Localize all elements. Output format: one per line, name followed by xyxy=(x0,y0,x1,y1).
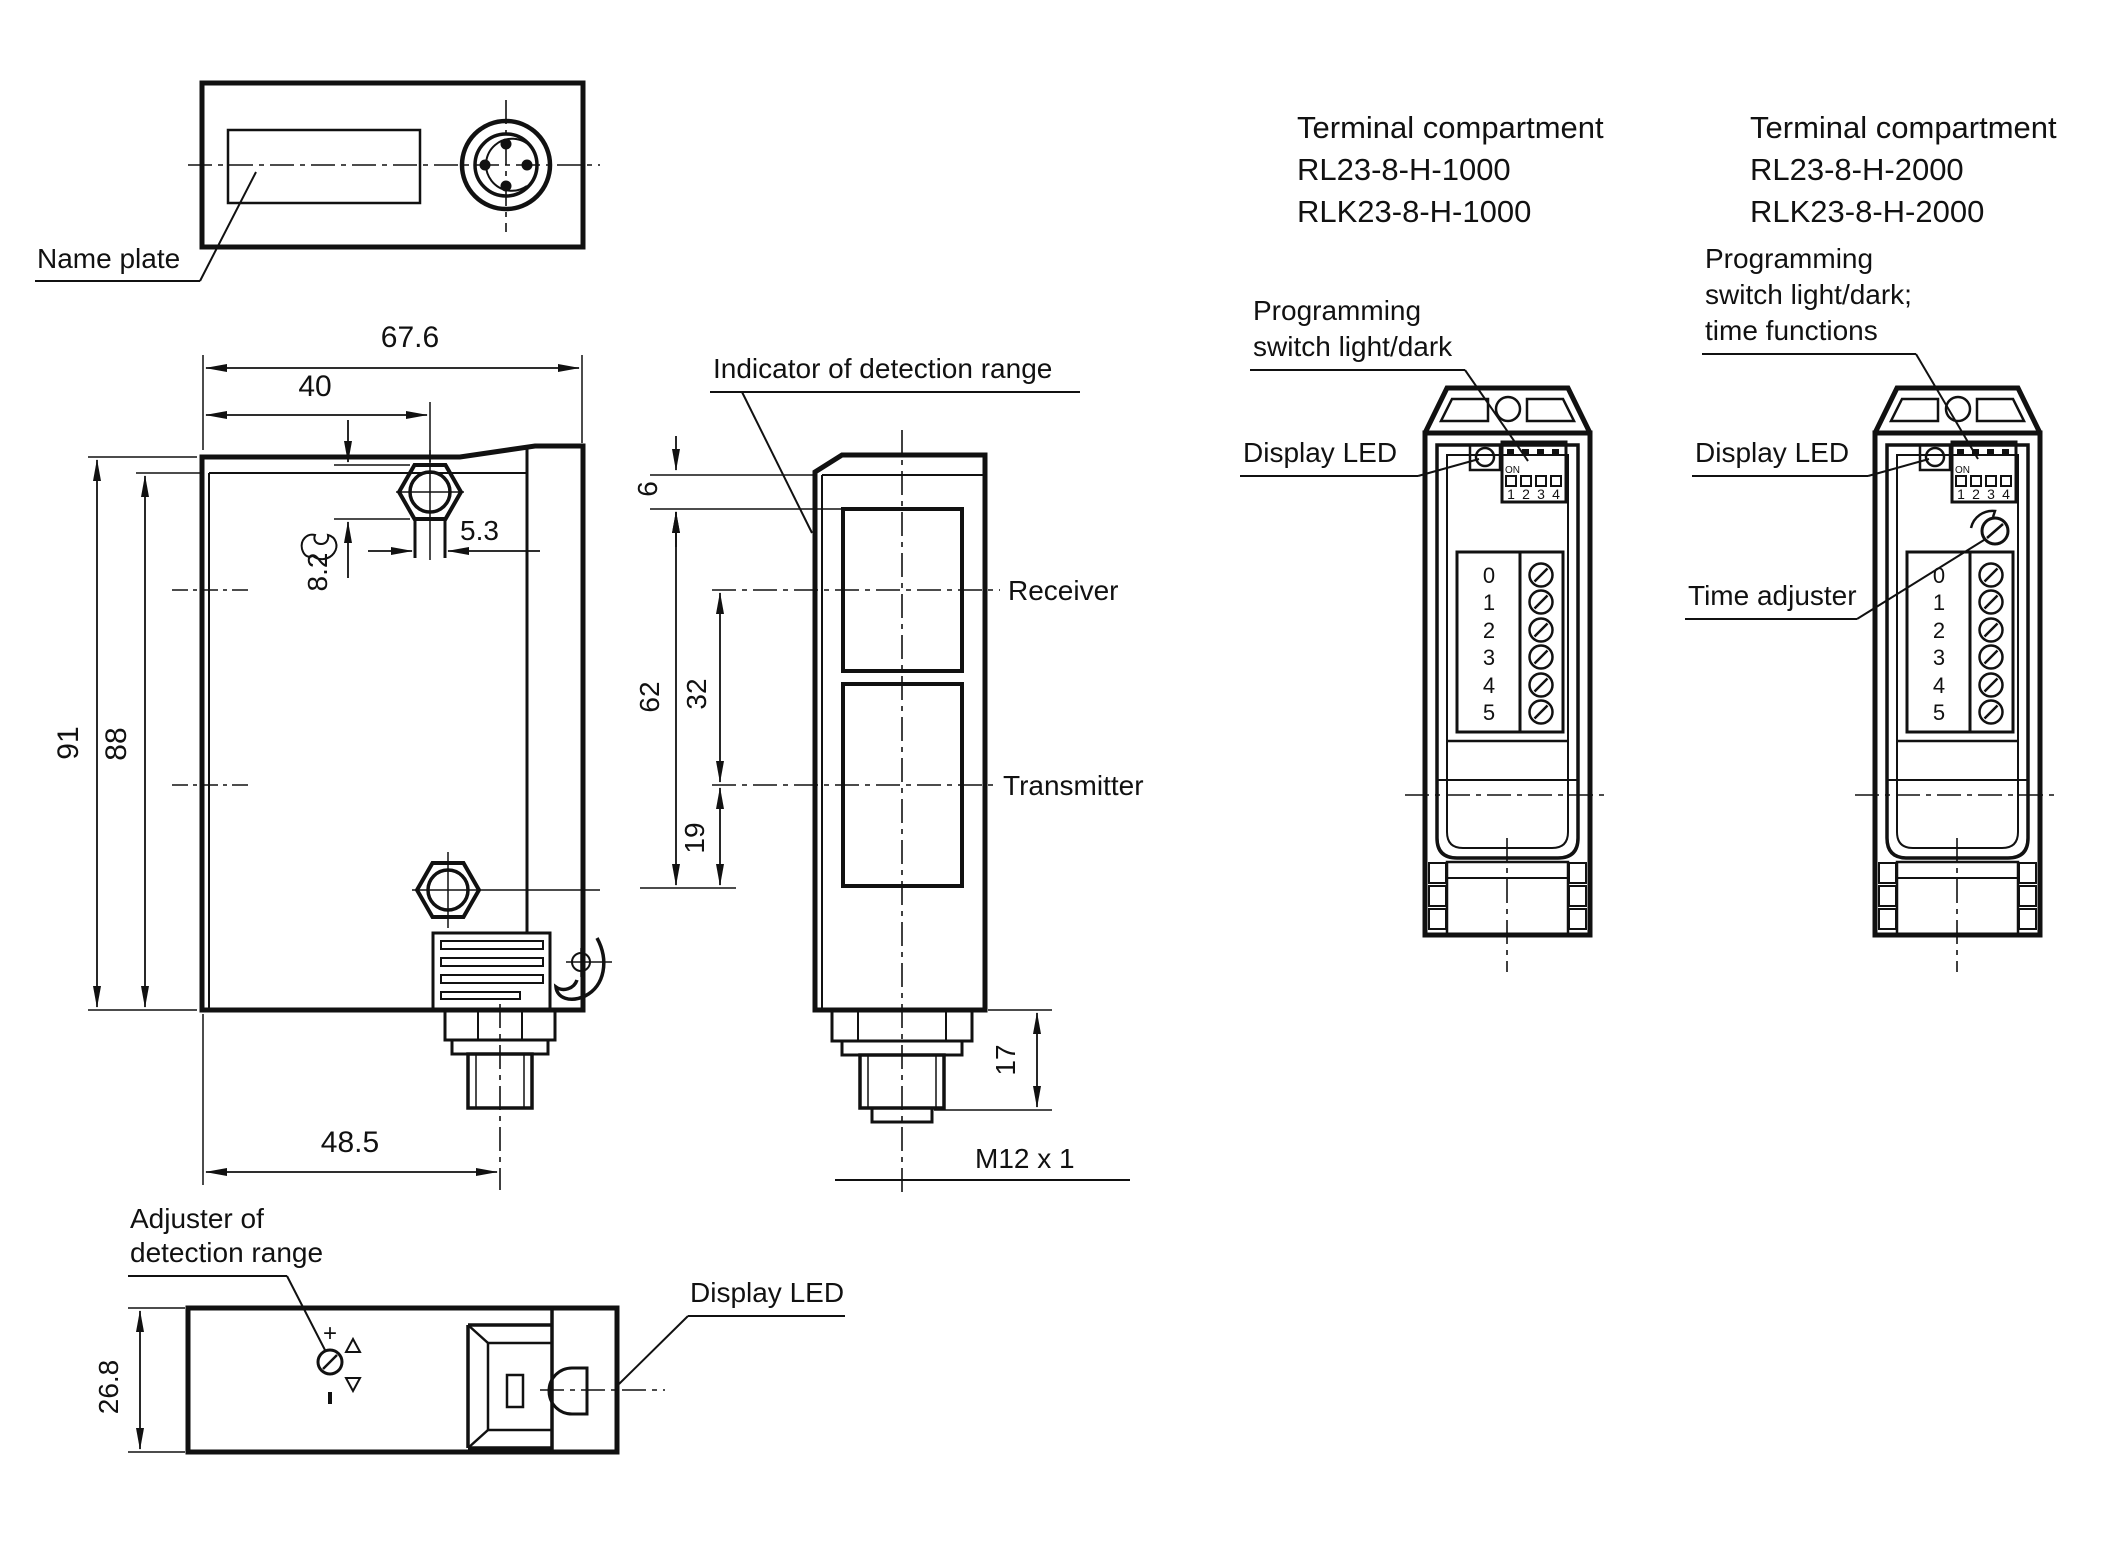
top-view: Name plate xyxy=(35,83,600,281)
technical-drawing-page: ON 1 2 3 4 0 1 2 3 4 5 xyxy=(0,0,2126,1559)
dim-19: 19 xyxy=(679,788,720,885)
led-window xyxy=(507,1375,523,1407)
terminal-compartment-2: Terminal compartment RL23-8-H-2000 RLK23… xyxy=(1685,110,2060,972)
terminal-device-2 xyxy=(1855,388,2060,972)
dim-26-8: 26.8 xyxy=(93,1308,185,1452)
dim-slot-width-value: 5.3 xyxy=(460,515,499,546)
dim-thread-value: 17 xyxy=(990,1044,1021,1075)
indicator-label: Indicator of detection range xyxy=(713,353,1052,384)
thread-label: M12 x 1 xyxy=(975,1143,1075,1174)
dim-width-value: 67.6 xyxy=(381,321,439,354)
dim-32: 32 xyxy=(681,593,720,782)
detection-range-adjuster-icon: + xyxy=(318,1320,360,1404)
terminal2-model-b: RLK23-8-H-2000 xyxy=(1750,194,1984,229)
name-plate-label: Name plate xyxy=(37,243,180,274)
terminal-compartment-1: Terminal compartment RL23-8-H-1000 RLK23… xyxy=(1240,110,1610,972)
lens-recess xyxy=(468,1325,552,1448)
dim-axis-gap-value: 32 xyxy=(681,678,712,709)
time-adjuster-label: Time adjuster xyxy=(1688,580,1857,611)
name-plate xyxy=(228,130,420,203)
side-view: Indicator of detection range Receiver Tr… xyxy=(632,353,1144,1192)
dim-height-outer-value: 91 xyxy=(52,726,85,759)
terminal2-title: Terminal compartment xyxy=(1750,110,2057,145)
dim-top-edge-value: 6 xyxy=(632,481,663,497)
terminal1-programming-line2: switch light/dark xyxy=(1253,331,1453,362)
display-led-bump-icon xyxy=(549,1368,587,1414)
dim-40: 40 xyxy=(206,370,430,462)
dim-connector-x-value: 48.5 xyxy=(321,1126,379,1159)
mounting-nut-bottom-icon xyxy=(412,852,600,928)
terminal1-display-led-label: Display LED xyxy=(1243,437,1397,468)
front-view: 67.6 40 91 88 8.2 xyxy=(52,321,612,1190)
dim-88: 88 xyxy=(100,473,204,1007)
dim-5-3: 5.3 xyxy=(368,515,540,551)
indicator-leader xyxy=(742,392,812,533)
display-led-leader xyxy=(619,1316,688,1384)
terminal2-model-a: RL23-8-H-2000 xyxy=(1750,152,1964,187)
terminal2-display-led-label: Display LED xyxy=(1695,437,1849,468)
terminal1-programming-line1: Programming xyxy=(1253,295,1421,326)
triangle-down-icon xyxy=(346,1378,360,1391)
terminal1-model-a: RL23-8-H-1000 xyxy=(1297,152,1511,187)
terminal2-programming-line3: time functions xyxy=(1705,315,1878,346)
sensor-dimension-drawing: ON 1 2 3 4 0 1 2 3 4 5 xyxy=(0,0,2126,1559)
dim-depth-value: 26.8 xyxy=(93,1360,124,1415)
terminal1-title: Terminal compartment xyxy=(1297,110,1604,145)
bottom-view: + 26.8 Adjuster of detection range Displ… xyxy=(93,1203,845,1452)
time-adjuster-icon xyxy=(1971,511,2008,544)
side-view-housing xyxy=(815,455,985,1010)
dim-8-2: 8.2 xyxy=(302,420,410,591)
terminal2-programming-line1: Programming xyxy=(1705,243,1873,274)
terminal-device-1 xyxy=(1405,388,1610,972)
dim-17: 17 xyxy=(934,1010,1052,1110)
triangle-up-icon xyxy=(346,1339,360,1352)
adjuster-leader xyxy=(287,1276,326,1352)
adjuster-label-line2: detection range xyxy=(130,1237,323,1268)
mounting-nut-top-icon xyxy=(396,450,464,560)
dim-hole-x-value: 40 xyxy=(298,370,331,403)
dim-lower-value: 19 xyxy=(679,822,710,853)
vent-slots xyxy=(433,933,550,1010)
dim-window-value: 62 xyxy=(634,681,665,712)
receiver-label: Receiver xyxy=(1008,575,1118,606)
dim-67-6: 67.6 xyxy=(203,321,582,450)
adjuster-plus-mark: + xyxy=(323,1320,337,1347)
terminal2-programming-line2: switch light/dark; xyxy=(1705,279,1912,310)
adjuster-label-line1: Adjuster of xyxy=(130,1203,264,1234)
dim-height-inner-value: 88 xyxy=(100,727,133,760)
front-connector xyxy=(445,1004,555,1190)
terminal1-model-b: RLK23-8-H-1000 xyxy=(1297,194,1531,229)
bottom-display-led-label: Display LED xyxy=(690,1277,844,1308)
transmitter-label: Transmitter xyxy=(1003,770,1144,801)
